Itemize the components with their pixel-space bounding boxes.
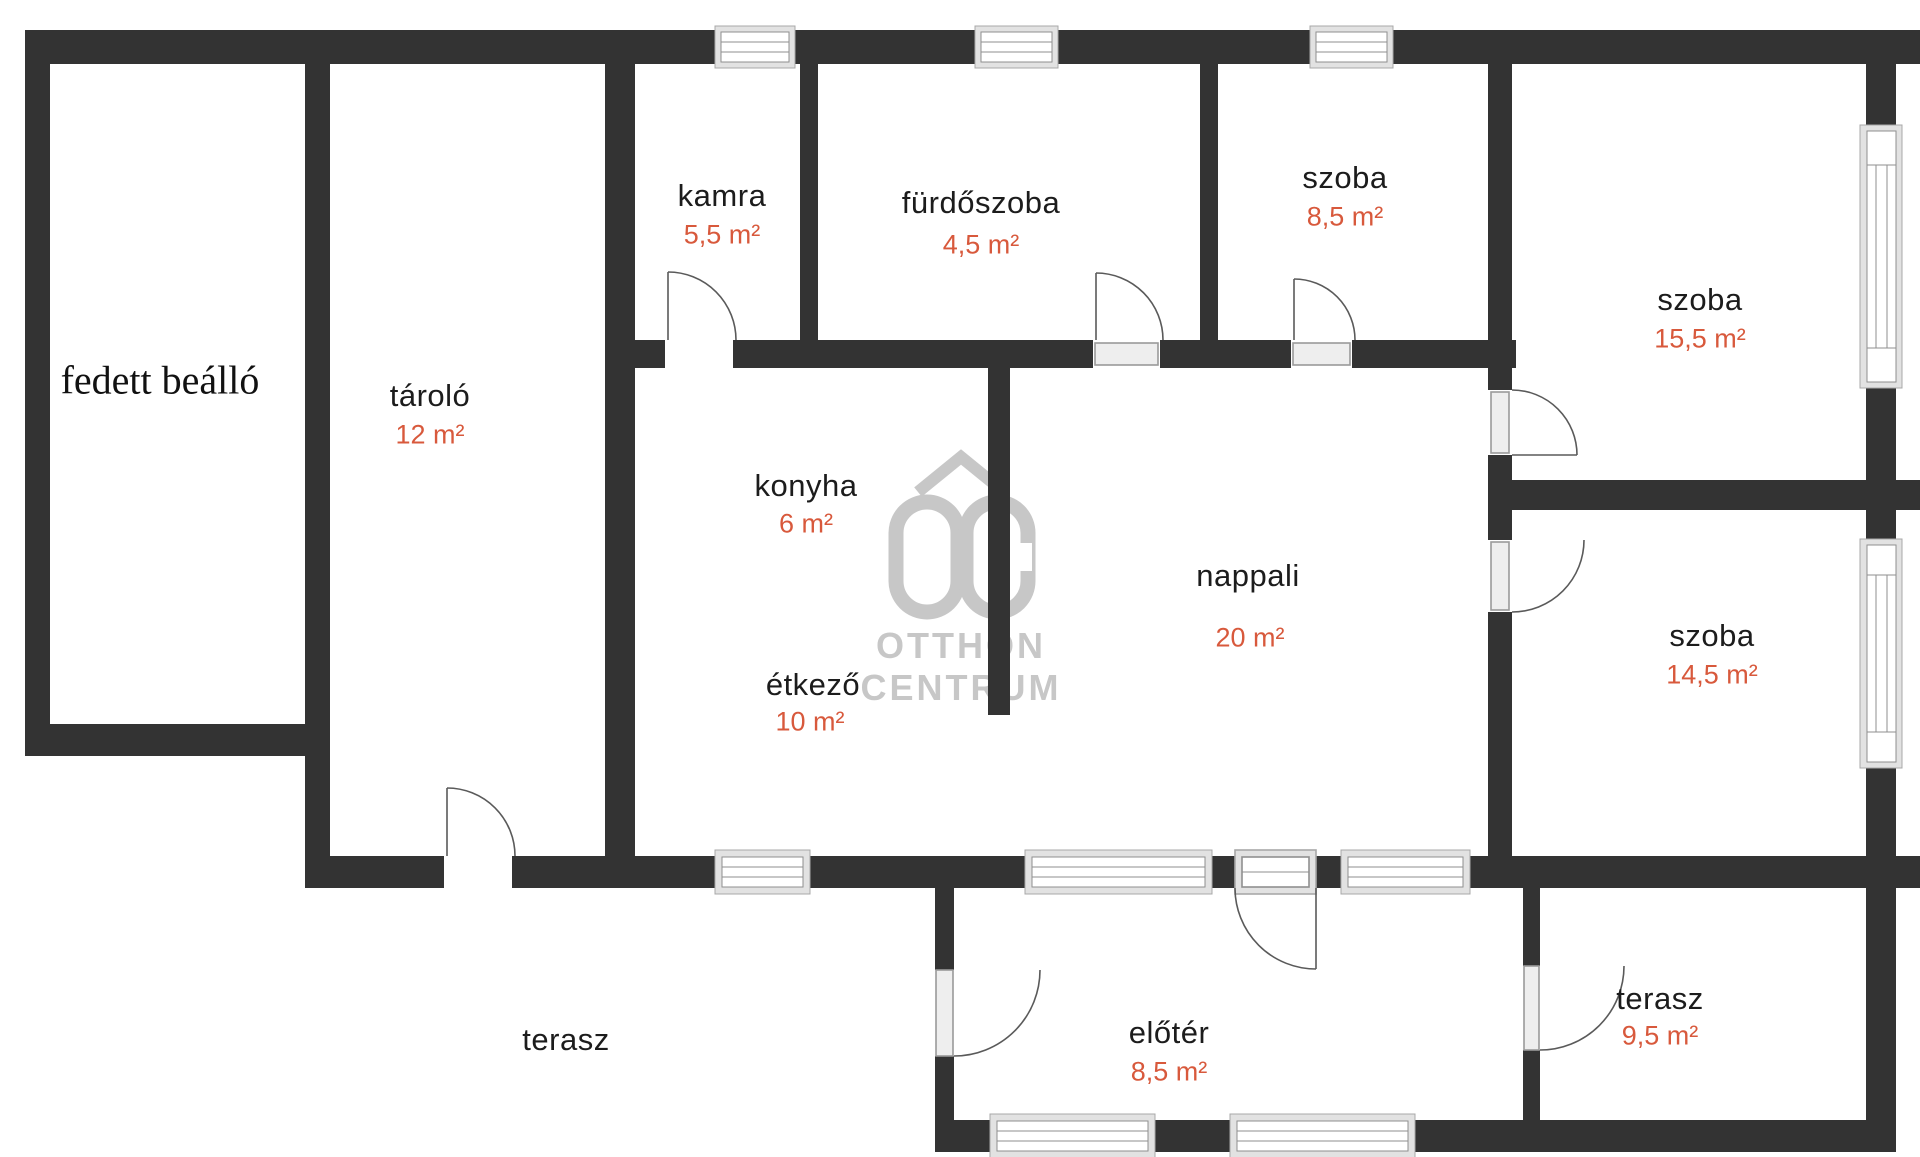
room-label-furdoszoba: fürdőszoba (902, 185, 1060, 221)
wall (25, 724, 330, 756)
window (1310, 26, 1393, 68)
door (447, 788, 515, 856)
floor-plan: OTTHON CENTRUM (0, 0, 1920, 1157)
wall (1523, 888, 1540, 966)
door-swing-arc (954, 970, 1040, 1056)
wall (1488, 58, 1512, 390)
room-label-terasz-jobb: terasz (1616, 981, 1703, 1017)
watermark-line2: CENTRUM (861, 667, 1062, 708)
room-area-eloter: 8,5 m² (1131, 1057, 1208, 1088)
window (715, 850, 810, 894)
watermark-line1: OTTHON (876, 625, 1046, 666)
door-swing-arc (1294, 279, 1355, 340)
door-swing-arc (1096, 273, 1163, 340)
window (990, 1114, 1155, 1157)
wall (605, 856, 715, 888)
window (1860, 539, 1902, 768)
door (1235, 850, 1316, 969)
room-label-terasz-bal: terasz (522, 1022, 609, 1058)
room-area-szoba-jobb-felso: 15,5 m² (1654, 324, 1746, 355)
wall (988, 368, 1010, 715)
wall (605, 340, 665, 368)
room-label-etkezo: étkező (766, 667, 860, 703)
door (1491, 540, 1584, 612)
wall (1155, 1120, 1230, 1152)
wall (810, 856, 1025, 888)
door (1491, 390, 1577, 455)
wall (935, 1120, 990, 1152)
wall (800, 58, 818, 340)
watermark-logo: OTTHON CENTRUM (861, 457, 1062, 708)
room-label-eloter: előtér (1129, 1015, 1210, 1051)
window (1341, 850, 1470, 894)
window (715, 26, 795, 68)
door (668, 272, 736, 340)
door (1095, 273, 1163, 365)
wall (1523, 1120, 1896, 1152)
door-swing-arc (1235, 888, 1316, 969)
wall (1160, 340, 1291, 368)
room-label-fedett-beallo: fedett beálló (61, 357, 260, 404)
wall (1200, 58, 1218, 340)
door-swing-arc (668, 272, 736, 340)
wall (1488, 480, 1920, 510)
window (1025, 850, 1212, 894)
wall (733, 340, 1093, 368)
wall (305, 856, 444, 888)
wall (1316, 856, 1341, 888)
room-area-szoba-felso: 8,5 m² (1307, 202, 1384, 233)
door (1524, 966, 1624, 1050)
logo-letter-o-icon (896, 502, 958, 612)
room-label-tarolo: tároló (390, 378, 471, 414)
room-area-tarolo: 12 m² (395, 420, 464, 451)
door-swing-arc (1512, 390, 1577, 455)
room-label-konyha: konyha (755, 468, 858, 504)
room-area-etkezo: 10 m² (775, 707, 844, 738)
room-label-szoba-felso: szoba (1302, 160, 1387, 196)
room-area-terasz-jobb: 9,5 m² (1622, 1021, 1699, 1052)
logo-letter-c-gap (1016, 543, 1032, 571)
wall (25, 30, 50, 756)
door-swing-arc (1540, 966, 1624, 1050)
wall (1470, 856, 1920, 888)
room-area-szoba-jobb-also: 14,5 m² (1666, 660, 1758, 691)
wall (1212, 856, 1235, 888)
window (1860, 125, 1902, 388)
window (1230, 1114, 1415, 1157)
door-swing-arc (447, 788, 515, 856)
room-label-kamra: kamra (678, 178, 767, 214)
room-label-nappali: nappali (1196, 558, 1299, 594)
wall (305, 30, 330, 888)
wall (1488, 612, 1512, 888)
room-area-nappali: 20 m² (1215, 623, 1284, 654)
door (936, 970, 1040, 1056)
room-area-konyha: 6 m² (779, 509, 833, 540)
wall (1415, 1120, 1540, 1152)
door (1293, 279, 1355, 365)
door-swing-arc (1512, 540, 1584, 612)
room-label-szoba-jobb-also: szoba (1669, 618, 1754, 654)
wall (605, 30, 635, 888)
room-area-kamra: 5,5 m² (684, 220, 761, 251)
room-label-szoba-jobb-felso: szoba (1657, 282, 1742, 318)
wall (935, 888, 954, 970)
room-area-furdoszoba: 4,5 m² (943, 230, 1020, 261)
window (975, 26, 1058, 68)
